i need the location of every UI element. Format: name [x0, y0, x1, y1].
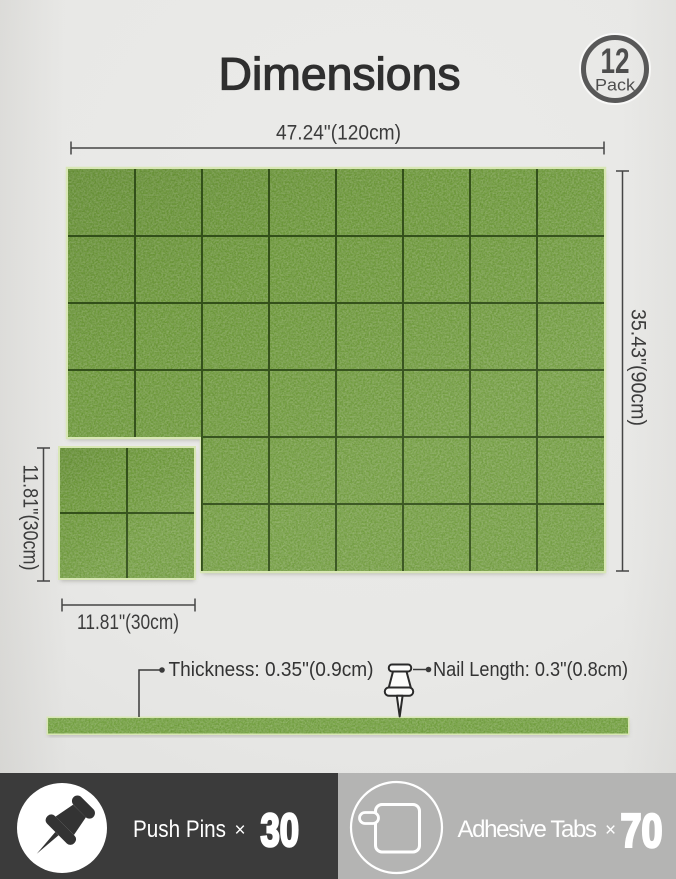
svg-text:70: 70	[621, 804, 663, 857]
svg-text:47.24"(120cm): 47.24"(120cm)	[276, 122, 401, 145]
svg-text:×: ×	[235, 820, 246, 841]
svg-text:Nail Length: 0.3"(0.8cm): Nail Length: 0.3"(0.8cm)	[433, 659, 628, 681]
svg-text:35.43"(90cm): 35.43"(90cm)	[627, 309, 650, 426]
svg-text:11.81"(30cm): 11.81"(30cm)	[19, 465, 42, 571]
svg-text:Dimensions: Dimensions	[219, 49, 461, 100]
svg-text:Pack: Pack	[595, 76, 636, 95]
svg-text:30: 30	[261, 804, 300, 856]
svg-text:11.81"(30cm): 11.81"(30cm)	[77, 611, 179, 634]
svg-text:Push Pins: Push Pins	[133, 816, 226, 843]
svg-text:Thickness: 0.35"(0.9cm): Thickness: 0.35"(0.9cm)	[169, 659, 374, 681]
svg-text:×: ×	[605, 820, 616, 841]
svg-text:Adhesive Tabs: Adhesive Tabs	[458, 816, 598, 843]
